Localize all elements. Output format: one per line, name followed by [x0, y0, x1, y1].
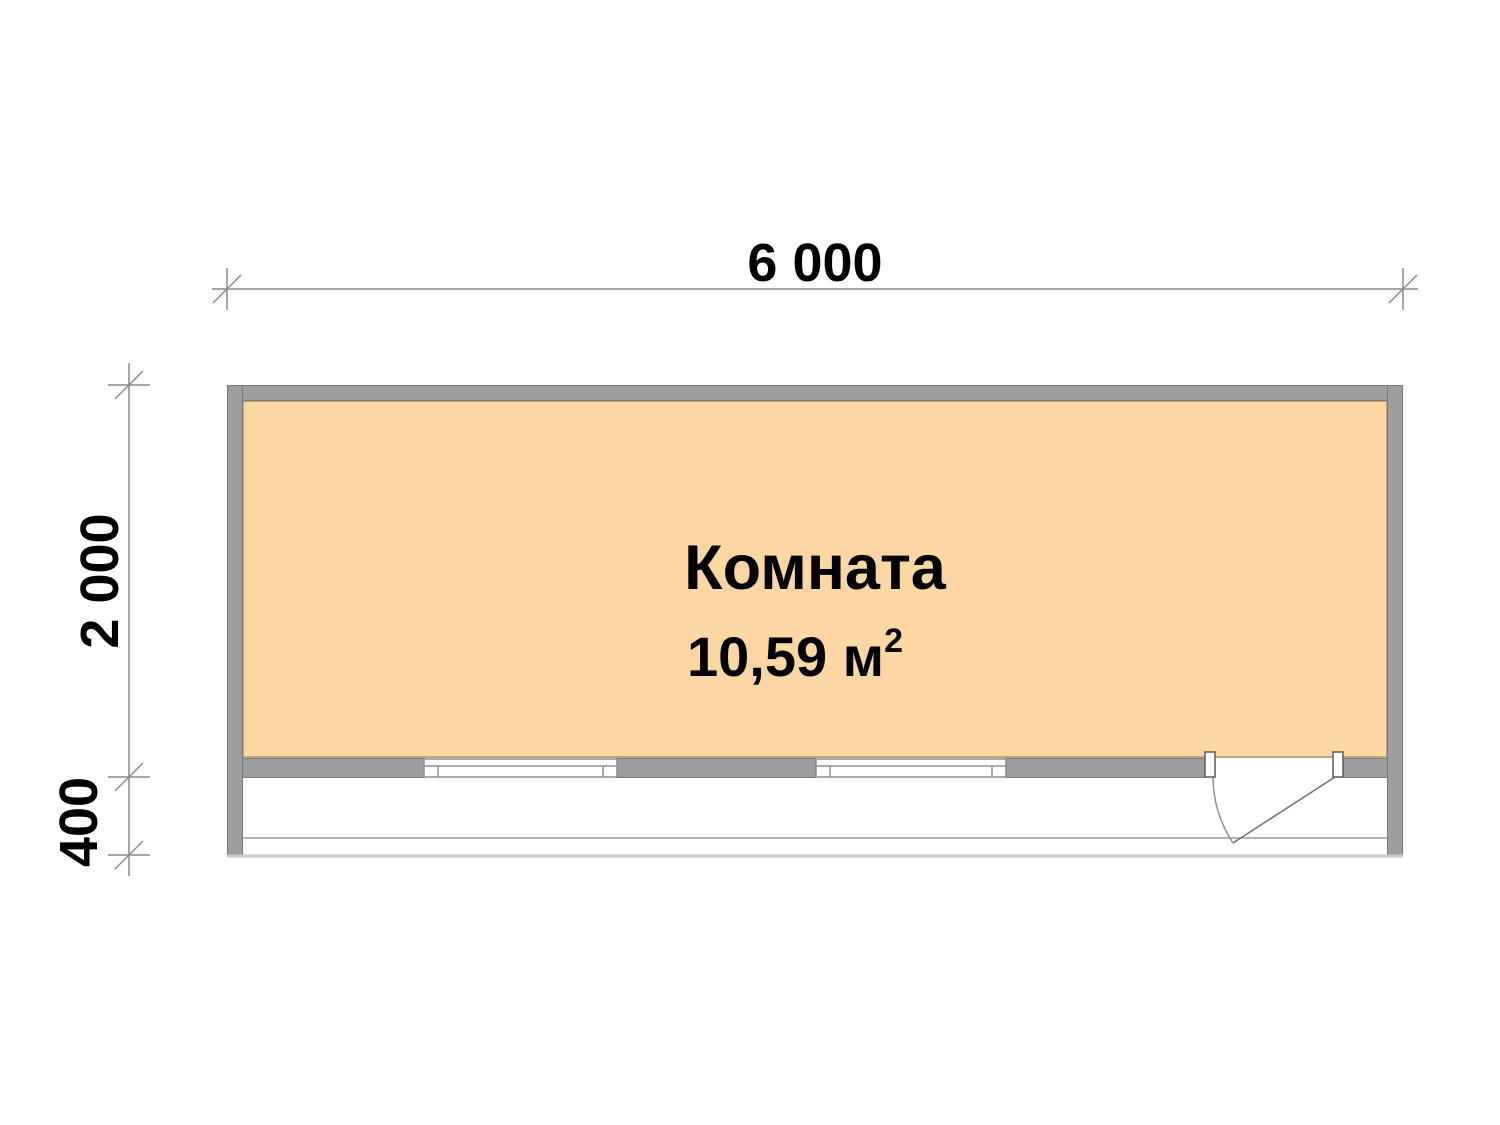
- room-area-value: 10,59 м: [687, 625, 884, 688]
- width-dimension-label: 6 000: [227, 236, 1403, 290]
- room-area-exponent: 2: [884, 622, 903, 660]
- door-symbol: [1205, 752, 1343, 843]
- depth-dimension-label: 2 000: [73, 481, 127, 681]
- window-symbol-2: [816, 759, 1006, 777]
- room-area-label: 10,59 м2: [222, 624, 1368, 685]
- window-frame: [816, 759, 1006, 777]
- floor-plan-canvas: 6 000 2 000 400 Комната 10,59 м2: [0, 0, 1500, 1125]
- door-jamb-right: [1333, 752, 1343, 777]
- door-swing-arc: [1213, 777, 1233, 843]
- porch-dimension-label: 400: [52, 742, 106, 902]
- room-name-label: Комната: [242, 537, 1388, 600]
- door-leaf-line: [1233, 777, 1335, 843]
- window-symbol-1: [424, 759, 617, 777]
- door-jamb-left: [1205, 752, 1215, 777]
- window-frame: [424, 759, 617, 777]
